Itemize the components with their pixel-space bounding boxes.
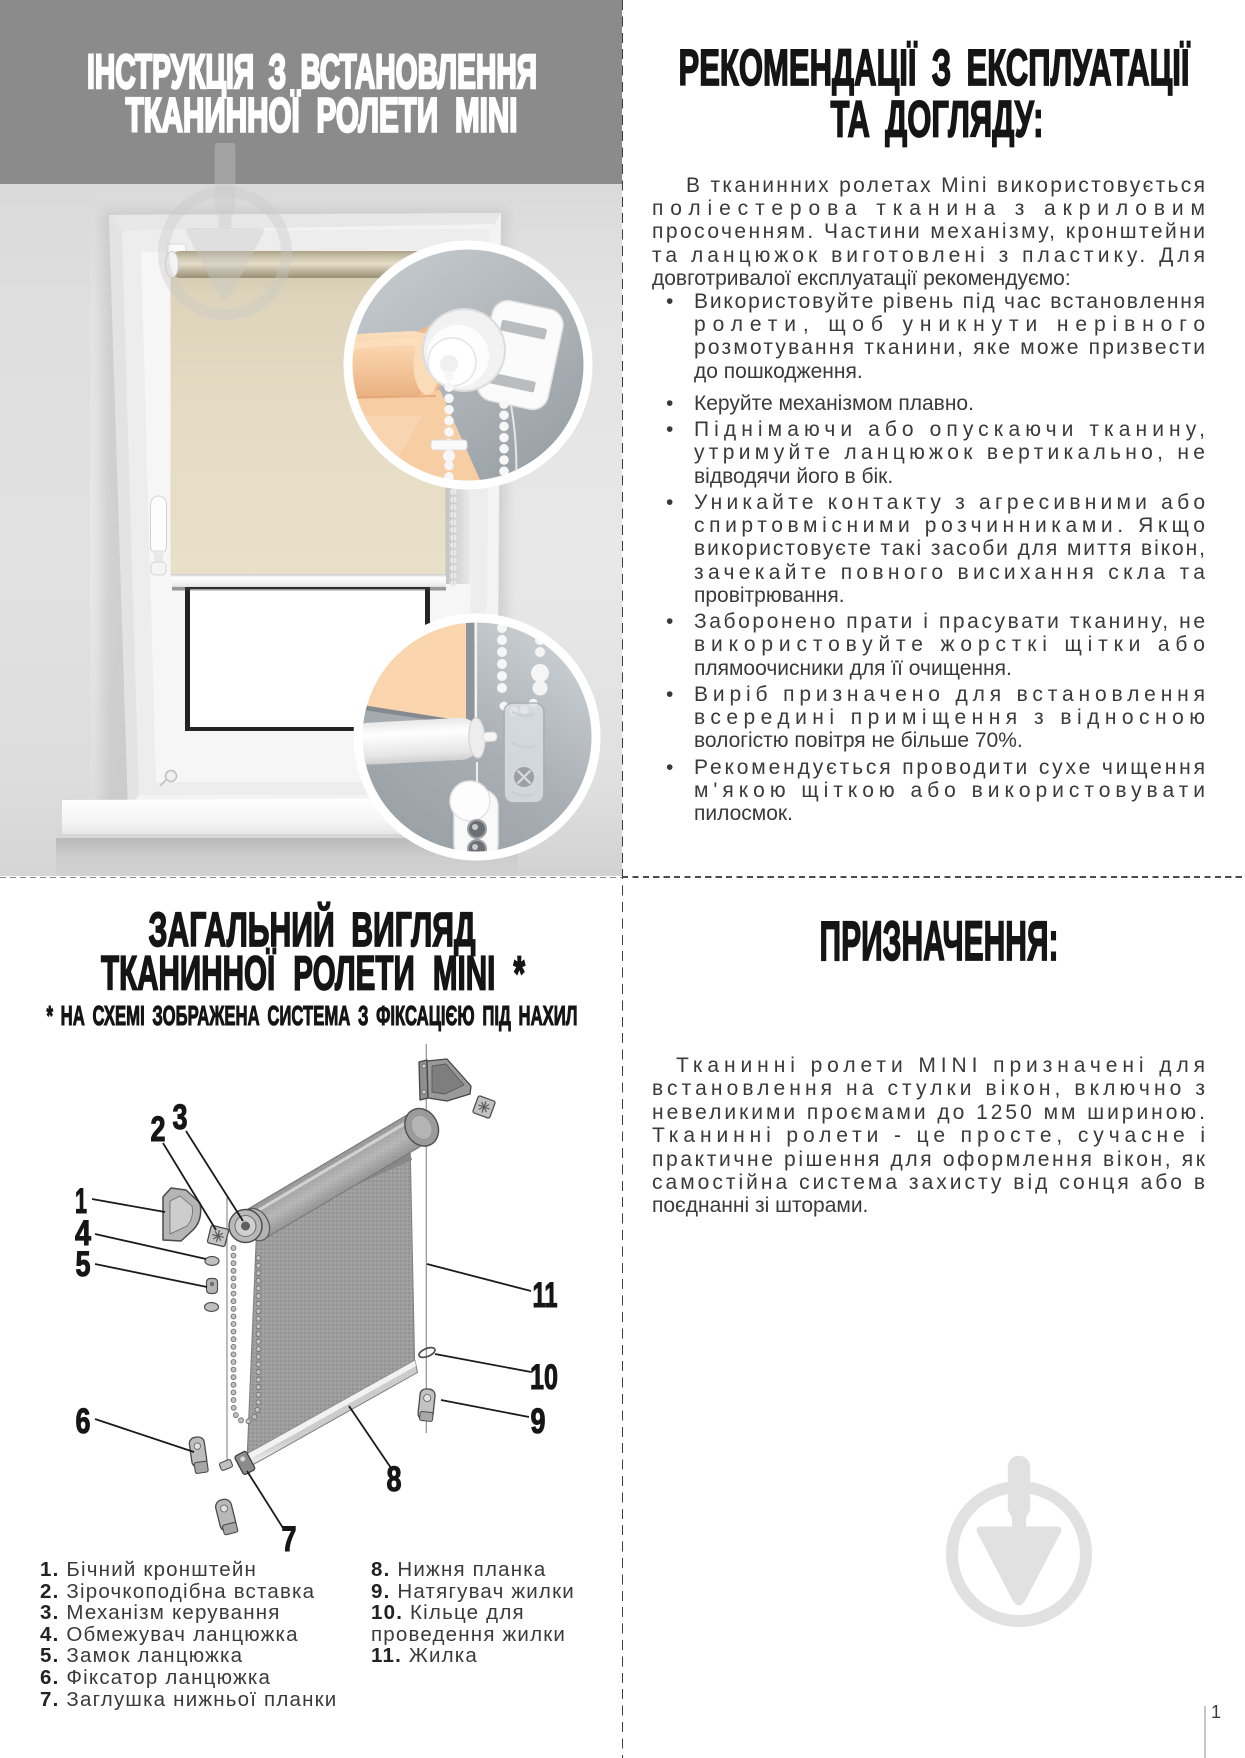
- svg-text:8: 8: [387, 1460, 402, 1499]
- svg-text:ТКАНИННОЇ РОЛЕТИ MINI *: ТКАНИННОЇ РОЛЕТИ MINI *: [101, 948, 525, 1001]
- svg-text:11: 11: [533, 1276, 558, 1315]
- svg-text:РЕКОМЕНДАЦІЇ З ЕКСПЛУАТАЦІЇ: РЕКОМЕНДАЦІЇ З ЕКСПЛУАТАЦІЇ: [679, 39, 1191, 96]
- svg-text:7: 7: [282, 1520, 297, 1559]
- svg-text:ТКАНИННОЇ РОЛЕТИ MINI: ТКАНИННОЇ РОЛЕТИ MINI: [126, 90, 518, 143]
- svg-text:ПРИЗНАЧЕННЯ:: ПРИЗНАЧЕННЯ:: [820, 909, 1059, 972]
- svg-text:ТА ДОГЛЯДУ:: ТА ДОГЛЯДУ:: [831, 91, 1044, 148]
- svg-text:6: 6: [76, 1402, 91, 1441]
- svg-text:2: 2: [151, 1110, 166, 1149]
- svg-text:10: 10: [530, 1358, 558, 1397]
- svg-text:5: 5: [76, 1245, 91, 1284]
- svg-text:9: 9: [531, 1402, 546, 1441]
- svg-text:3: 3: [173, 1098, 188, 1137]
- svg-text:* НА СХЕМІ ЗОБРАЖЕНА СИСТЕМА З: * НА СХЕМІ ЗОБРАЖЕНА СИСТЕМА З ФІКСАЦІЄЮ…: [47, 1000, 578, 1031]
